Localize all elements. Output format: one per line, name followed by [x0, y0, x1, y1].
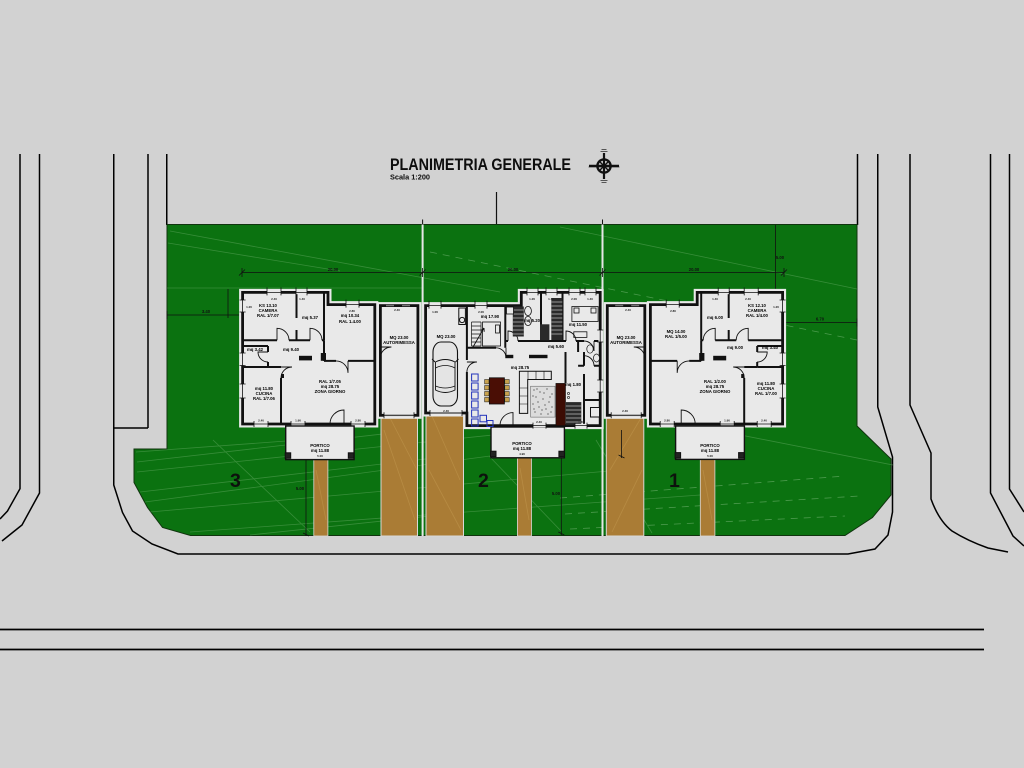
svg-text:mq 6.00: mq 6.00 [707, 315, 724, 320]
svg-text:1.90: 1.90 [724, 419, 730, 423]
svg-text:6.70: 6.70 [816, 317, 825, 322]
svg-text:2.40: 2.40 [625, 308, 631, 312]
svg-text:1: 1 [669, 470, 680, 492]
svg-text:5.00: 5.00 [707, 454, 713, 458]
svg-text:2.40: 2.40 [394, 308, 400, 312]
svg-text:1.10: 1.10 [548, 297, 554, 301]
svg-text:mq 5.20: mq 5.20 [524, 318, 541, 323]
svg-text:mq 1.80: mq 1.80 [565, 382, 582, 387]
svg-text:1.20: 1.20 [246, 305, 252, 309]
svg-text:AUTORIMESSA: AUTORIMESSA [383, 340, 415, 345]
svg-text:ZONA GIORNO: ZONA GIORNO [315, 389, 346, 394]
svg-text:20.00: 20.00 [328, 267, 339, 272]
svg-text:3.40: 3.40 [202, 309, 211, 314]
svg-text:mq 9.00: mq 9.00 [727, 345, 744, 350]
svg-text:RAL 1/7.00: RAL 1/7.00 [755, 391, 778, 396]
svg-text:MQ 23.00: MQ 23.00 [437, 334, 456, 339]
svg-text:2.46: 2.46 [622, 409, 628, 413]
svg-text:mq 3.42: mq 3.42 [247, 347, 264, 352]
svg-text:2: 2 [478, 470, 489, 492]
svg-text:5.00: 5.00 [317, 454, 323, 458]
svg-text:5.00: 5.00 [552, 491, 561, 496]
svg-text:mq 11.88: mq 11.88 [513, 446, 532, 451]
svg-text:2.40: 2.40 [761, 419, 767, 423]
svg-text:mq 5.60: mq 5.60 [548, 344, 565, 349]
svg-text:1.26: 1.26 [529, 297, 535, 301]
svg-text:5.00: 5.00 [776, 255, 785, 260]
svg-text:5.00: 5.00 [296, 486, 305, 491]
svg-text:3: 3 [230, 470, 241, 492]
svg-text:4.90: 4.90 [519, 452, 525, 456]
svg-text:1.20: 1.20 [773, 305, 779, 309]
svg-text:Scala 1:200: Scala 1:200 [390, 173, 430, 182]
svg-text:RAL 1/7.06: RAL 1/7.06 [253, 396, 276, 401]
svg-text:mq 3.40: mq 3.40 [762, 345, 779, 350]
svg-text:RAL 1.4.00: RAL 1.4.00 [339, 319, 362, 324]
svg-text:1.60: 1.60 [578, 420, 584, 424]
svg-text:2.46: 2.46 [443, 409, 449, 413]
svg-text:2.40: 2.40 [271, 297, 277, 301]
svg-text:mq 28.75: mq 28.75 [511, 365, 530, 370]
svg-text:mq 11.50: mq 11.50 [569, 322, 588, 327]
svg-text:2.40: 2.40 [745, 297, 751, 301]
svg-text:AUTORIMESSA: AUTORIMESSA [610, 340, 642, 345]
svg-text:ZONA GIORNO: ZONA GIORNO [700, 389, 731, 394]
svg-text:mq 11.88: mq 11.88 [701, 448, 720, 453]
svg-text:2.80: 2.80 [355, 419, 361, 423]
svg-text:1.06: 1.06 [432, 310, 438, 314]
svg-text:20.00: 20.00 [689, 267, 700, 272]
svg-text:RAL 1/5.00: RAL 1/5.00 [665, 334, 688, 339]
svg-text:mq 11.88: mq 11.88 [311, 448, 330, 453]
svg-text:mq 17.90: mq 17.90 [481, 314, 500, 319]
svg-text:PLANIMETRIA GENERALE: PLANIMETRIA GENERALE [390, 156, 571, 174]
svg-text:20.00: 20.00 [508, 267, 519, 272]
svg-text:1.90: 1.90 [295, 419, 301, 423]
svg-text:mq 9.40: mq 9.40 [283, 347, 300, 352]
svg-text:1.40: 1.40 [712, 297, 718, 301]
svg-text:mq 10.34: mq 10.34 [341, 313, 360, 318]
svg-text:2.80: 2.80 [670, 309, 676, 313]
svg-text:2.40: 2.40 [258, 419, 264, 423]
svg-text:1.40: 1.40 [299, 297, 305, 301]
svg-text:2.06: 2.06 [571, 297, 577, 301]
svg-text:2.40: 2.40 [536, 420, 542, 424]
svg-text:1.40: 1.40 [587, 297, 593, 301]
svg-text:RAL 1/4.00: RAL 1/4.00 [746, 313, 769, 318]
svg-text:2.80: 2.80 [664, 419, 670, 423]
svg-text:RAL 1/7.07: RAL 1/7.07 [257, 313, 280, 318]
svg-text:mq 5.37: mq 5.37 [302, 315, 319, 320]
